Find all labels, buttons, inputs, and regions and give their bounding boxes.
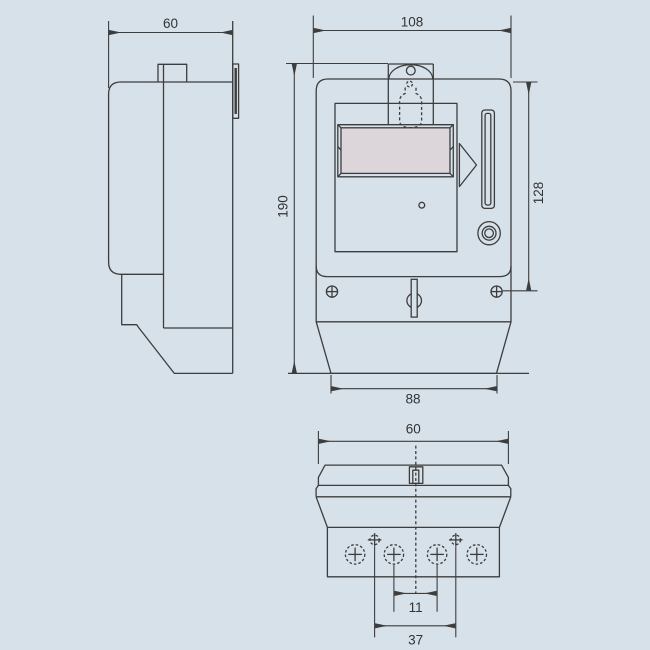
fixing-screw-left (326, 286, 338, 298)
seal-screw-blade (411, 279, 417, 317)
dimension-label: 60 (406, 422, 421, 437)
drawing-background (0, 0, 650, 650)
dimension-label: 60 (163, 16, 178, 31)
dimension-label: 128 (531, 182, 546, 205)
technical-drawing: 60 108 190 128 (0, 0, 650, 650)
dimension-label: 108 (401, 15, 424, 30)
lcd-display (338, 125, 454, 177)
fixing-screw-right (491, 286, 503, 298)
dimension-label: 11 (409, 600, 423, 615)
display-window (341, 128, 450, 174)
dimension-label: 190 (276, 195, 291, 218)
meter-dimension-drawing: 60 108 190 128 (0, 0, 650, 650)
dimension-label: 88 (405, 392, 420, 407)
dimension-label: 37 (408, 633, 423, 648)
